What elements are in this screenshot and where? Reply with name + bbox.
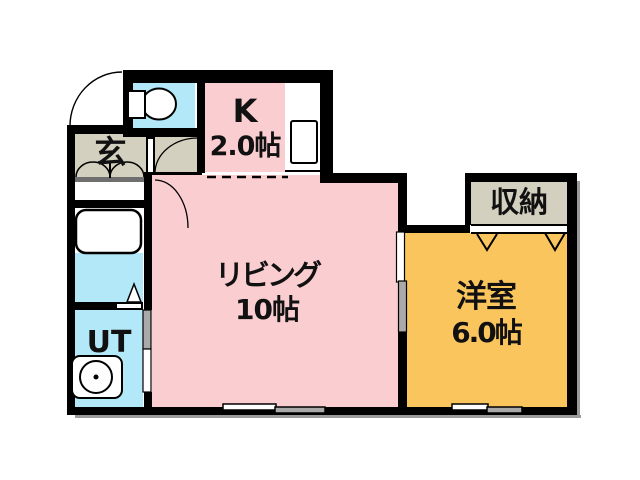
living-room (152, 175, 398, 407)
wall (465, 173, 471, 225)
plan-shadow-right (577, 181, 580, 415)
sliding-door-icon (143, 349, 151, 392)
wall (398, 332, 407, 407)
entry-door-swing-arc-icon (70, 72, 122, 126)
entrance-step-edge (75, 177, 146, 182)
bathtub-icon (76, 210, 141, 253)
wall (67, 302, 115, 310)
wall (67, 125, 75, 415)
entrance-corridor (155, 137, 197, 172)
utility-room (75, 310, 143, 407)
wall (144, 172, 152, 310)
wall (123, 70, 333, 83)
wall (67, 407, 575, 415)
wall (67, 200, 152, 208)
wall (144, 392, 152, 407)
wall (465, 173, 577, 182)
toilet-room (133, 82, 195, 128)
wall (67, 125, 125, 134)
wall (330, 173, 407, 183)
wall (123, 128, 205, 137)
wall (123, 82, 133, 129)
closet-door-track (471, 224, 567, 234)
floor-plan: 玄 K 2.0帖 リビング 10帖 洋室 6.0帖 収納 UT (0, 0, 640, 480)
entrance-hall-door (146, 137, 155, 174)
kitchen-counter (285, 82, 320, 172)
wall (398, 173, 407, 232)
washroom (75, 253, 143, 302)
entrance-area (75, 134, 146, 177)
western-room (405, 233, 567, 407)
wall (197, 70, 205, 173)
storage-room (471, 181, 567, 224)
plan-shadow-bottom (75, 415, 581, 418)
wall (398, 225, 470, 233)
washroom-door-opening (115, 302, 143, 310)
kitchen-room (205, 82, 285, 172)
sliding-door-icon (143, 310, 151, 349)
wall (567, 173, 577, 415)
wall (320, 70, 333, 183)
